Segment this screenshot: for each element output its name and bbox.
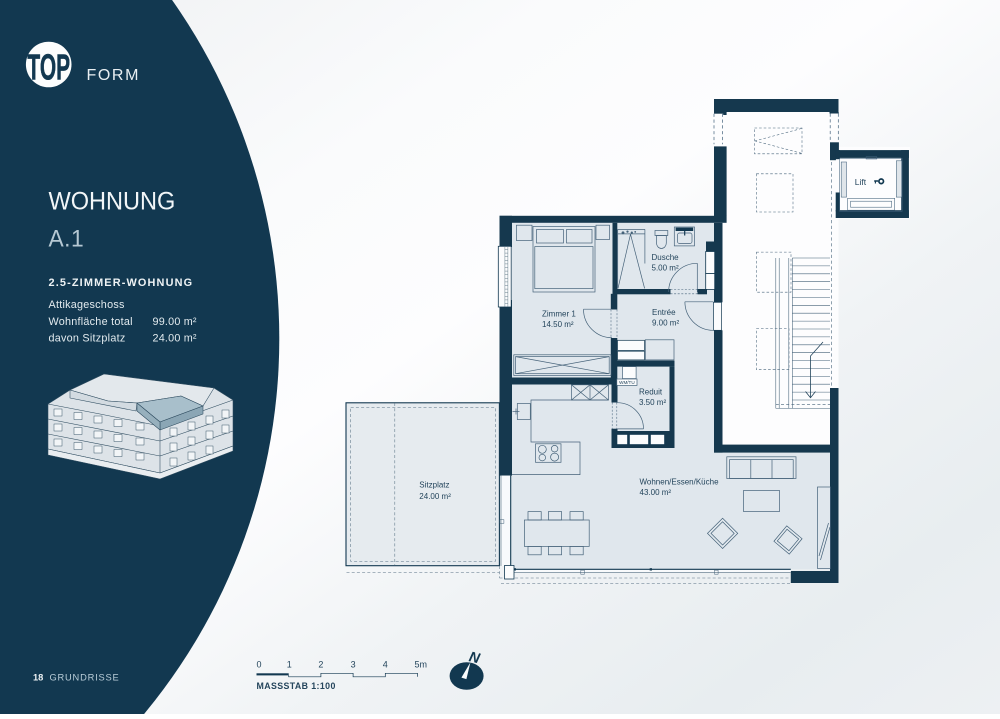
svg-text:5m: 5m bbox=[415, 660, 428, 670]
svg-text:24.00 m²: 24.00 m² bbox=[419, 492, 451, 501]
svg-text:Sitzplatz: Sitzplatz bbox=[419, 481, 449, 490]
svg-text:3: 3 bbox=[351, 660, 356, 670]
svg-text:0: 0 bbox=[257, 660, 262, 670]
svg-text:2: 2 bbox=[318, 660, 323, 670]
svg-text:Wohnen/Essen/Küche: Wohnen/Essen/Küche bbox=[640, 477, 720, 486]
svg-text:FORM: FORM bbox=[87, 67, 141, 84]
svg-text:WM/TU: WM/TU bbox=[619, 380, 635, 385]
svg-text:99.00 m²: 99.00 m² bbox=[153, 316, 197, 328]
svg-text:Attikageschoss: Attikageschoss bbox=[49, 299, 125, 311]
svg-text:Lift: Lift bbox=[855, 177, 867, 187]
svg-text:TOP: TOP bbox=[27, 48, 70, 88]
svg-text:Entrée: Entrée bbox=[652, 308, 676, 317]
svg-text:24.00 m²: 24.00 m² bbox=[153, 333, 197, 345]
svg-text:Dusche: Dusche bbox=[652, 253, 680, 262]
svg-text:4: 4 bbox=[383, 660, 388, 670]
svg-text:Zimmer 1: Zimmer 1 bbox=[542, 310, 576, 319]
svg-text:9.00 m²: 9.00 m² bbox=[652, 318, 679, 327]
svg-text:3.50 m²: 3.50 m² bbox=[639, 398, 666, 407]
svg-text:A.1: A.1 bbox=[48, 225, 84, 252]
svg-text:1: 1 bbox=[287, 660, 292, 670]
svg-text:14.50 m²: 14.50 m² bbox=[542, 320, 574, 329]
svg-text:18: 18 bbox=[33, 673, 43, 683]
svg-text:WOHNUNG: WOHNUNG bbox=[48, 188, 175, 216]
svg-text:GRUNDRISSE: GRUNDRISSE bbox=[50, 673, 120, 683]
svg-text:2.5-ZIMMER-WOHNUNG: 2.5-ZIMMER-WOHNUNG bbox=[49, 277, 194, 289]
svg-text:Reduit: Reduit bbox=[639, 388, 663, 397]
svg-text:Wohnfläche total: Wohnfläche total bbox=[49, 316, 133, 328]
svg-text:43.00 m²: 43.00 m² bbox=[640, 488, 672, 497]
svg-text:MASSSTAB 1:100: MASSSTAB 1:100 bbox=[257, 681, 336, 691]
svg-text:davon Sitzplatz: davon Sitzplatz bbox=[49, 333, 126, 345]
svg-text:5.00 m²: 5.00 m² bbox=[652, 263, 679, 272]
